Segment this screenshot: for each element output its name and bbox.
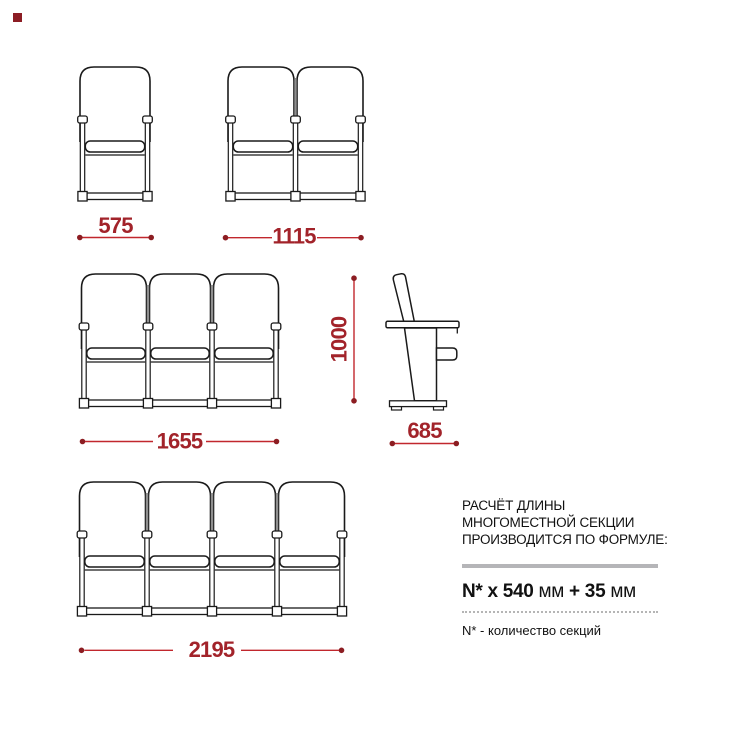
dim-label-1655: 1655 bbox=[157, 429, 203, 454]
info-title: РАСЧЁТ ДЛИНЫ МНОГОМЕСТНОЙ СЕКЦИИ ПРОИЗВО… bbox=[462, 497, 674, 548]
dim-label-575: 575 bbox=[98, 213, 133, 238]
formula-unit-1: мм bbox=[534, 581, 569, 602]
dim-depth: 685 bbox=[390, 418, 460, 446]
dim-height: 1000 bbox=[327, 275, 357, 403]
dim-label-1115: 1115 bbox=[272, 224, 316, 249]
dim-label-1000: 1000 bbox=[327, 316, 352, 362]
info-title-line-2: МНОГОМЕСТНОЙ СЕКЦИИ bbox=[462, 514, 674, 531]
dim-double-width: 1115 bbox=[223, 224, 364, 249]
formula-bold-2: + 35 bbox=[569, 581, 605, 602]
formula-panel: РАСЧЁТ ДЛИНЫ МНОГОМЕСТНОЙ СЕКЦИИ ПРОИЗВО… bbox=[462, 497, 674, 639]
front-view-2-seat bbox=[226, 67, 366, 201]
info-title-line-1: РАСЧЁТ ДЛИНЫ bbox=[462, 497, 674, 514]
front-view-4-seat bbox=[77, 482, 347, 616]
dim-label-685: 685 bbox=[407, 418, 442, 443]
divider-dotted bbox=[462, 611, 658, 613]
formula-unit-2: мм bbox=[605, 581, 636, 602]
front-view-1-seat bbox=[78, 67, 153, 201]
formula-bold-1: N* x 540 bbox=[462, 581, 534, 602]
dim-quad-width: 2195 bbox=[79, 637, 345, 662]
dim-label-2195: 2195 bbox=[189, 637, 235, 662]
info-title-line-3: ПРОИЗВОДИТСЯ ПО ФОРМУЛЕ: bbox=[462, 531, 674, 548]
formula-note: N* - количество секций bbox=[462, 623, 674, 639]
front-view-3-seat bbox=[79, 274, 281, 408]
side-view-drawing bbox=[386, 274, 459, 410]
divider-solid bbox=[462, 564, 658, 568]
page: 575 1115 1655 1000 bbox=[0, 0, 750, 750]
formula-text: N* x 540 мм + 35 мм bbox=[462, 581, 674, 603]
dim-triple-width: 1655 bbox=[80, 429, 280, 454]
dim-single-width: 575 bbox=[77, 213, 154, 240]
